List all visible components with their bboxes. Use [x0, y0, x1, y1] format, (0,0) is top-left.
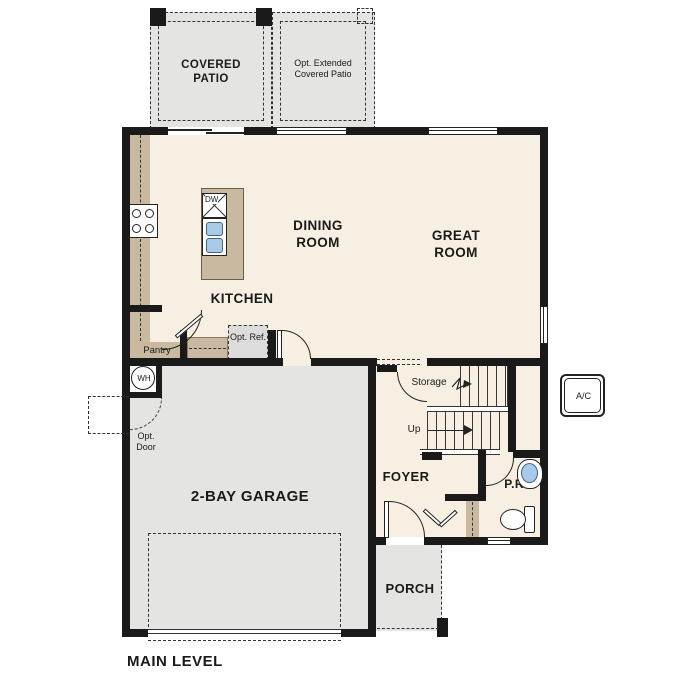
pantry-label: Pantry: [138, 345, 176, 356]
wall: [268, 330, 276, 359]
opt-patio-post-outline: [357, 8, 373, 24]
burner-icon: [145, 224, 154, 233]
sink-basin: [521, 463, 538, 483]
great-room-label: GREAT ROOM: [417, 228, 495, 262]
closet-rod-dashline: [472, 502, 473, 536]
up-arrow-line: [428, 430, 466, 431]
wall-pr-west: [478, 452, 486, 500]
foyer-label: FOYER: [375, 469, 437, 485]
garage-door-panel: [148, 629, 341, 634]
front-door-opening: [386, 537, 424, 545]
floor-plan: COVERED PATIO Opt. Extended Covered Pati…: [0, 0, 687, 687]
stair-break-dashline: [499, 412, 500, 450]
wall-stair-east: [508, 365, 516, 452]
sliding-door: [168, 127, 244, 135]
powder-sink: [517, 459, 543, 489]
window: [428, 127, 498, 135]
burner-icon: [132, 224, 141, 233]
wall-west: [122, 127, 130, 637]
opt-extended-patio-label: Opt. Extended Covered Patio: [283, 58, 363, 80]
porch-post: [437, 618, 448, 637]
page-title: MAIN LEVEL: [127, 653, 257, 672]
porch-label: PORCH: [380, 581, 440, 597]
cooktop: [128, 204, 158, 238]
wall: [422, 452, 442, 460]
kitchen-label: KITCHEN: [204, 291, 280, 308]
wall-pr-north: [513, 450, 548, 458]
sliding-door-panel: [206, 132, 244, 134]
water-heater-label: WH: [132, 374, 156, 383]
window-mullion: [543, 307, 544, 343]
wall: [377, 365, 397, 372]
window-mullion: [277, 130, 346, 131]
garage-apron-outline: [148, 533, 341, 627]
patio-post: [150, 8, 166, 26]
wall-mid: [122, 358, 548, 366]
wall-garage-east: [368, 358, 376, 637]
sink-basin: [206, 238, 223, 253]
wall-closet-north: [445, 494, 486, 501]
patio-post: [256, 8, 272, 26]
up-label: Up: [402, 424, 426, 436]
window-mullion: [429, 130, 497, 131]
window: [487, 537, 511, 545]
covered-patio-label: COVERED PATIO: [165, 58, 257, 87]
counter-dashline: [189, 348, 226, 349]
window-mullion: [488, 540, 510, 541]
window: [540, 306, 548, 344]
garage-door-opening: [283, 358, 311, 366]
up-arrow-head-icon: [464, 425, 473, 435]
dining-room-label: DINING ROOM: [279, 218, 357, 252]
porch-edge-dashline: [377, 628, 439, 629]
dishwasher: DW: [202, 193, 227, 218]
ac-unit-inner: A/C: [564, 378, 601, 413]
porch-edge-dashline: [441, 545, 442, 620]
storage-leader-arrow-icon: [450, 374, 476, 396]
garage-door-dashline: [148, 640, 341, 641]
water-heater: WH: [131, 366, 155, 390]
wall: [128, 305, 162, 312]
ac-label: A/C: [565, 391, 602, 401]
garage-label: 2-BAY GARAGE: [190, 488, 310, 507]
ac-unit: A/C: [560, 374, 605, 417]
storage-label: Storage: [406, 377, 452, 389]
burner-icon: [132, 209, 141, 218]
burner-icon: [145, 209, 154, 218]
opt-door-label: Opt. Door: [128, 431, 164, 453]
toilet-bowl: [500, 509, 526, 530]
window: [276, 127, 347, 135]
sink-basin: [206, 222, 223, 236]
dishwasher-label: DW: [205, 195, 218, 204]
island-sink: [202, 218, 227, 256]
opt-ref-label: Opt. Ref.: [230, 332, 266, 343]
sliding-door-panel: [168, 129, 212, 131]
opt-door-stoop-outline: [88, 396, 129, 434]
